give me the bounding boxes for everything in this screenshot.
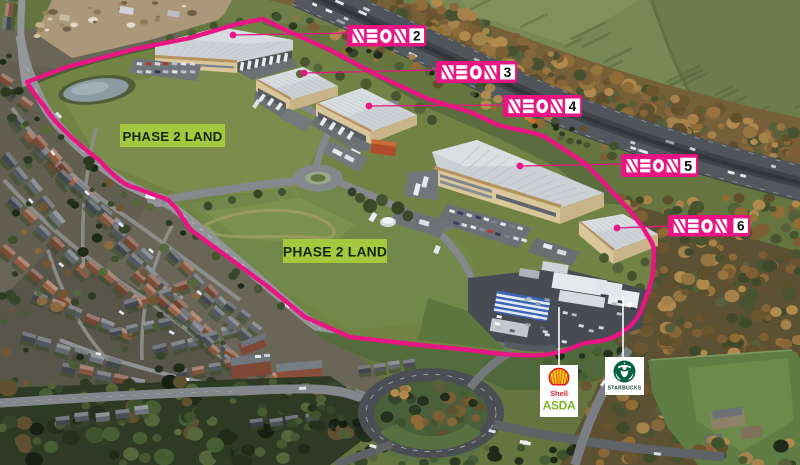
svg-text:Shell: Shell [550,389,568,398]
svg-text:STARBUCKS: STARBUCKS [608,386,642,392]
svg-text:2: 2 [413,29,421,44]
svg-text:PHASE 2 LAND: PHASE 2 LAND [123,129,223,144]
svg-text:4: 4 [569,99,577,114]
svg-text:6: 6 [737,219,745,234]
svg-text:ASDA: ASDA [543,399,576,413]
svg-text:3: 3 [504,65,512,80]
svg-text:5: 5 [684,159,692,175]
svg-text:PHASE 2 LAND: PHASE 2 LAND [283,244,387,260]
